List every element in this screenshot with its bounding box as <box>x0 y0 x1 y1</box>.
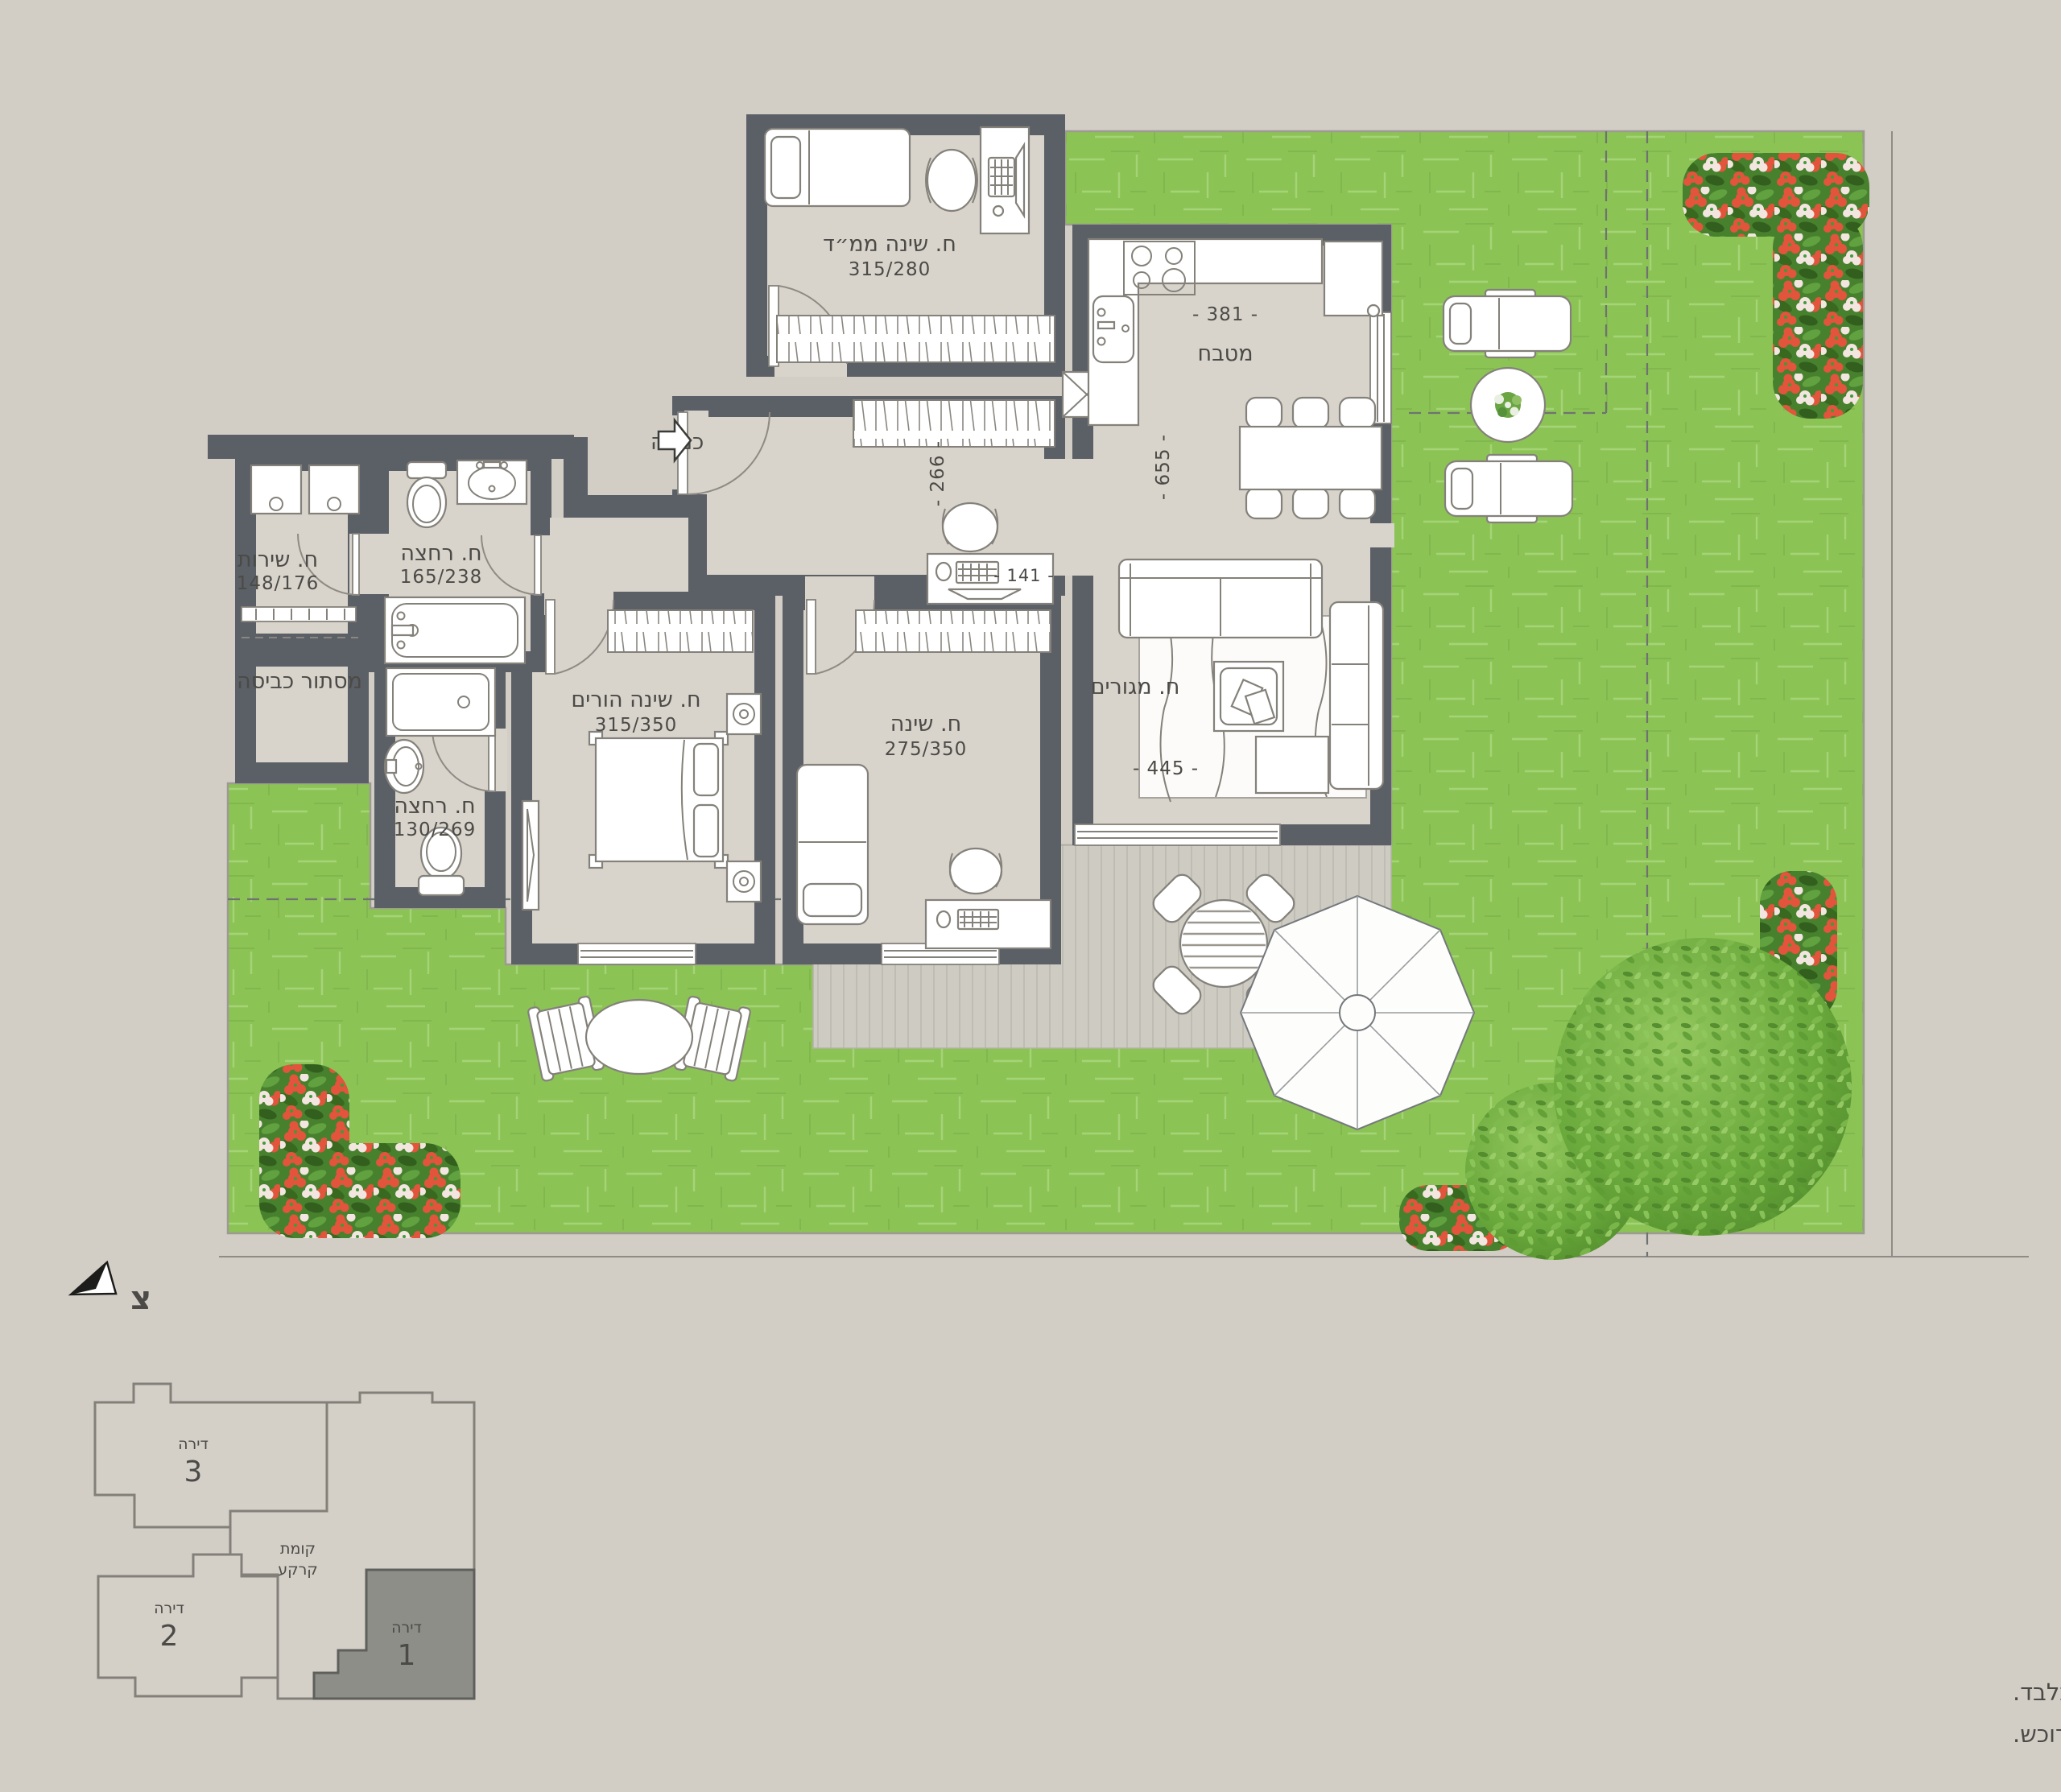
label-bath1: ח. רחצה <box>400 541 481 566</box>
apartment: ח. שינה ממ״ד 315/280 - 381 - מטבח - 655 … <box>208 125 1394 964</box>
dim-kitchen-depth: - 655 - <box>1153 434 1174 500</box>
keyplan-floor-label-1: קומת <box>280 1540 316 1558</box>
keyplan-apt1-label: דירה <box>391 1619 422 1637</box>
dim-kitchen-width: - 381 - <box>1192 304 1258 325</box>
label-kitchen: מטבח <box>1197 341 1253 366</box>
dining-table <box>1240 398 1382 518</box>
dim-living-width: - 445 - <box>1133 758 1199 779</box>
flower-bed-bottom-left-h <box>259 1143 461 1238</box>
keyplan-apartment-3 <box>95 1384 327 1527</box>
dims-bedroom: 275/350 <box>885 739 968 760</box>
flower-bed-top-right-v <box>1773 211 1863 419</box>
label-laundry: מסתור כביסה <box>237 669 362 694</box>
wall-left-wing-top <box>208 435 574 459</box>
window-master-south <box>578 943 696 964</box>
garden-dining-set <box>527 996 750 1081</box>
keyplan-apt3-number: 3 <box>184 1455 203 1489</box>
keyplan-apt2-number: 2 <box>160 1620 179 1653</box>
refrigerator <box>1324 242 1382 316</box>
coffee-table <box>1214 662 1283 731</box>
opening-kitchen-living <box>1072 523 1394 547</box>
wall-mirror <box>522 801 539 910</box>
mouse-icon <box>936 563 951 580</box>
office-chair <box>950 849 1002 894</box>
closet-mamad <box>777 316 1055 362</box>
toilet-icon <box>407 462 446 527</box>
floorplan-drawing: ח. שינה ממ״ד 315/280 - 381 - מטבח - 655 … <box>0 0 2061 1792</box>
bath2-door-leaf <box>489 729 495 791</box>
sun-lounger <box>1445 455 1572 522</box>
closet-hall <box>853 400 1055 447</box>
garden-side-table <box>1471 368 1545 442</box>
patio-round-table <box>1180 900 1267 987</box>
keyplan-apt2-label: דירה <box>154 1600 184 1617</box>
bedroom-door-leaf <box>807 600 816 674</box>
label-master: ח. שינה הורים <box>571 687 700 712</box>
office-chair <box>926 150 977 211</box>
disclaimer-line-1: *המידע במסמך זה ובהדמיות הינו כללי ונועד… <box>2013 1678 2061 1706</box>
sun-lounger <box>1444 290 1571 357</box>
dims-service: 148/176 <box>237 573 320 594</box>
office-chair <box>943 503 997 551</box>
vanity-sink <box>457 460 527 504</box>
closet-master <box>608 610 753 652</box>
dims-mamad: 315/280 <box>849 259 931 280</box>
floorplan-page: ח. שינה ממ״ד 315/280 - 381 - מטבח - 655 … <box>0 0 2061 1792</box>
wall-corridor-top <box>564 495 676 519</box>
washing-machine <box>251 465 301 514</box>
pedestal-sink <box>385 740 423 793</box>
umbrella-icon <box>1241 896 1474 1129</box>
double-bed <box>589 732 728 868</box>
dim-hall: - 266 - <box>927 440 948 506</box>
nightstand <box>727 694 761 734</box>
shower <box>386 668 495 736</box>
disclaimer-line-2: המסמכים המחייבים את החברה הינם הסכם המכר… <box>2013 1720 2061 1748</box>
label-bedroom: ח. שינה <box>890 712 961 737</box>
keyplan-floor-label-2: קרקע <box>278 1561 318 1579</box>
dryer <box>309 465 359 514</box>
north-letter: צ <box>130 1280 151 1317</box>
keyboard-icon <box>956 562 998 583</box>
side-table <box>1256 737 1328 793</box>
keyplan-apt3-label: דירה <box>178 1435 209 1453</box>
disclaimer: *המידע במסמך זה ובהדמיות הינו כללי ונועד… <box>2013 1678 2061 1748</box>
dims-bath1: 165/238 <box>400 567 483 588</box>
window-living-south <box>1075 824 1280 845</box>
dim-nook: - 141 - <box>993 566 1055 585</box>
nightstand <box>727 861 761 902</box>
north-arrow: צ <box>71 1262 151 1317</box>
desk-with-computer <box>981 127 1029 233</box>
single-bed <box>797 765 868 924</box>
key-plan: דירה 3 דירה 2 דירה 1 קומת קרקע <box>95 1384 474 1699</box>
label-bath2: ח. רחצה <box>394 794 475 819</box>
corner-sofa <box>1330 602 1383 789</box>
bath1-door-leaf <box>535 535 541 595</box>
corridor-floor <box>550 518 688 592</box>
keyplan-apt1-number: 1 <box>398 1639 416 1672</box>
garden-oval-table <box>586 1000 692 1074</box>
master-door-leaf <box>546 600 555 674</box>
keyplan-apartment-2 <box>98 1555 278 1696</box>
label-service: ח. שירות <box>237 547 318 572</box>
single-bed <box>765 129 910 206</box>
dims-master: 315/350 <box>595 715 678 736</box>
bush-large-texture <box>1554 938 1852 1236</box>
sofa <box>1119 559 1322 638</box>
service-door-leaf <box>353 534 359 595</box>
dims-bath2: 130/269 <box>394 820 477 840</box>
closet-bedroom <box>856 610 1051 652</box>
desk-with-computer <box>926 900 1051 948</box>
kitchen-sink <box>1093 296 1134 362</box>
label-living: ח. מגורים <box>1091 675 1180 700</box>
table-plant-icon <box>1494 392 1522 418</box>
bathtub <box>385 597 525 663</box>
label-mamad: ח. שינה ממ״ד <box>823 232 956 257</box>
